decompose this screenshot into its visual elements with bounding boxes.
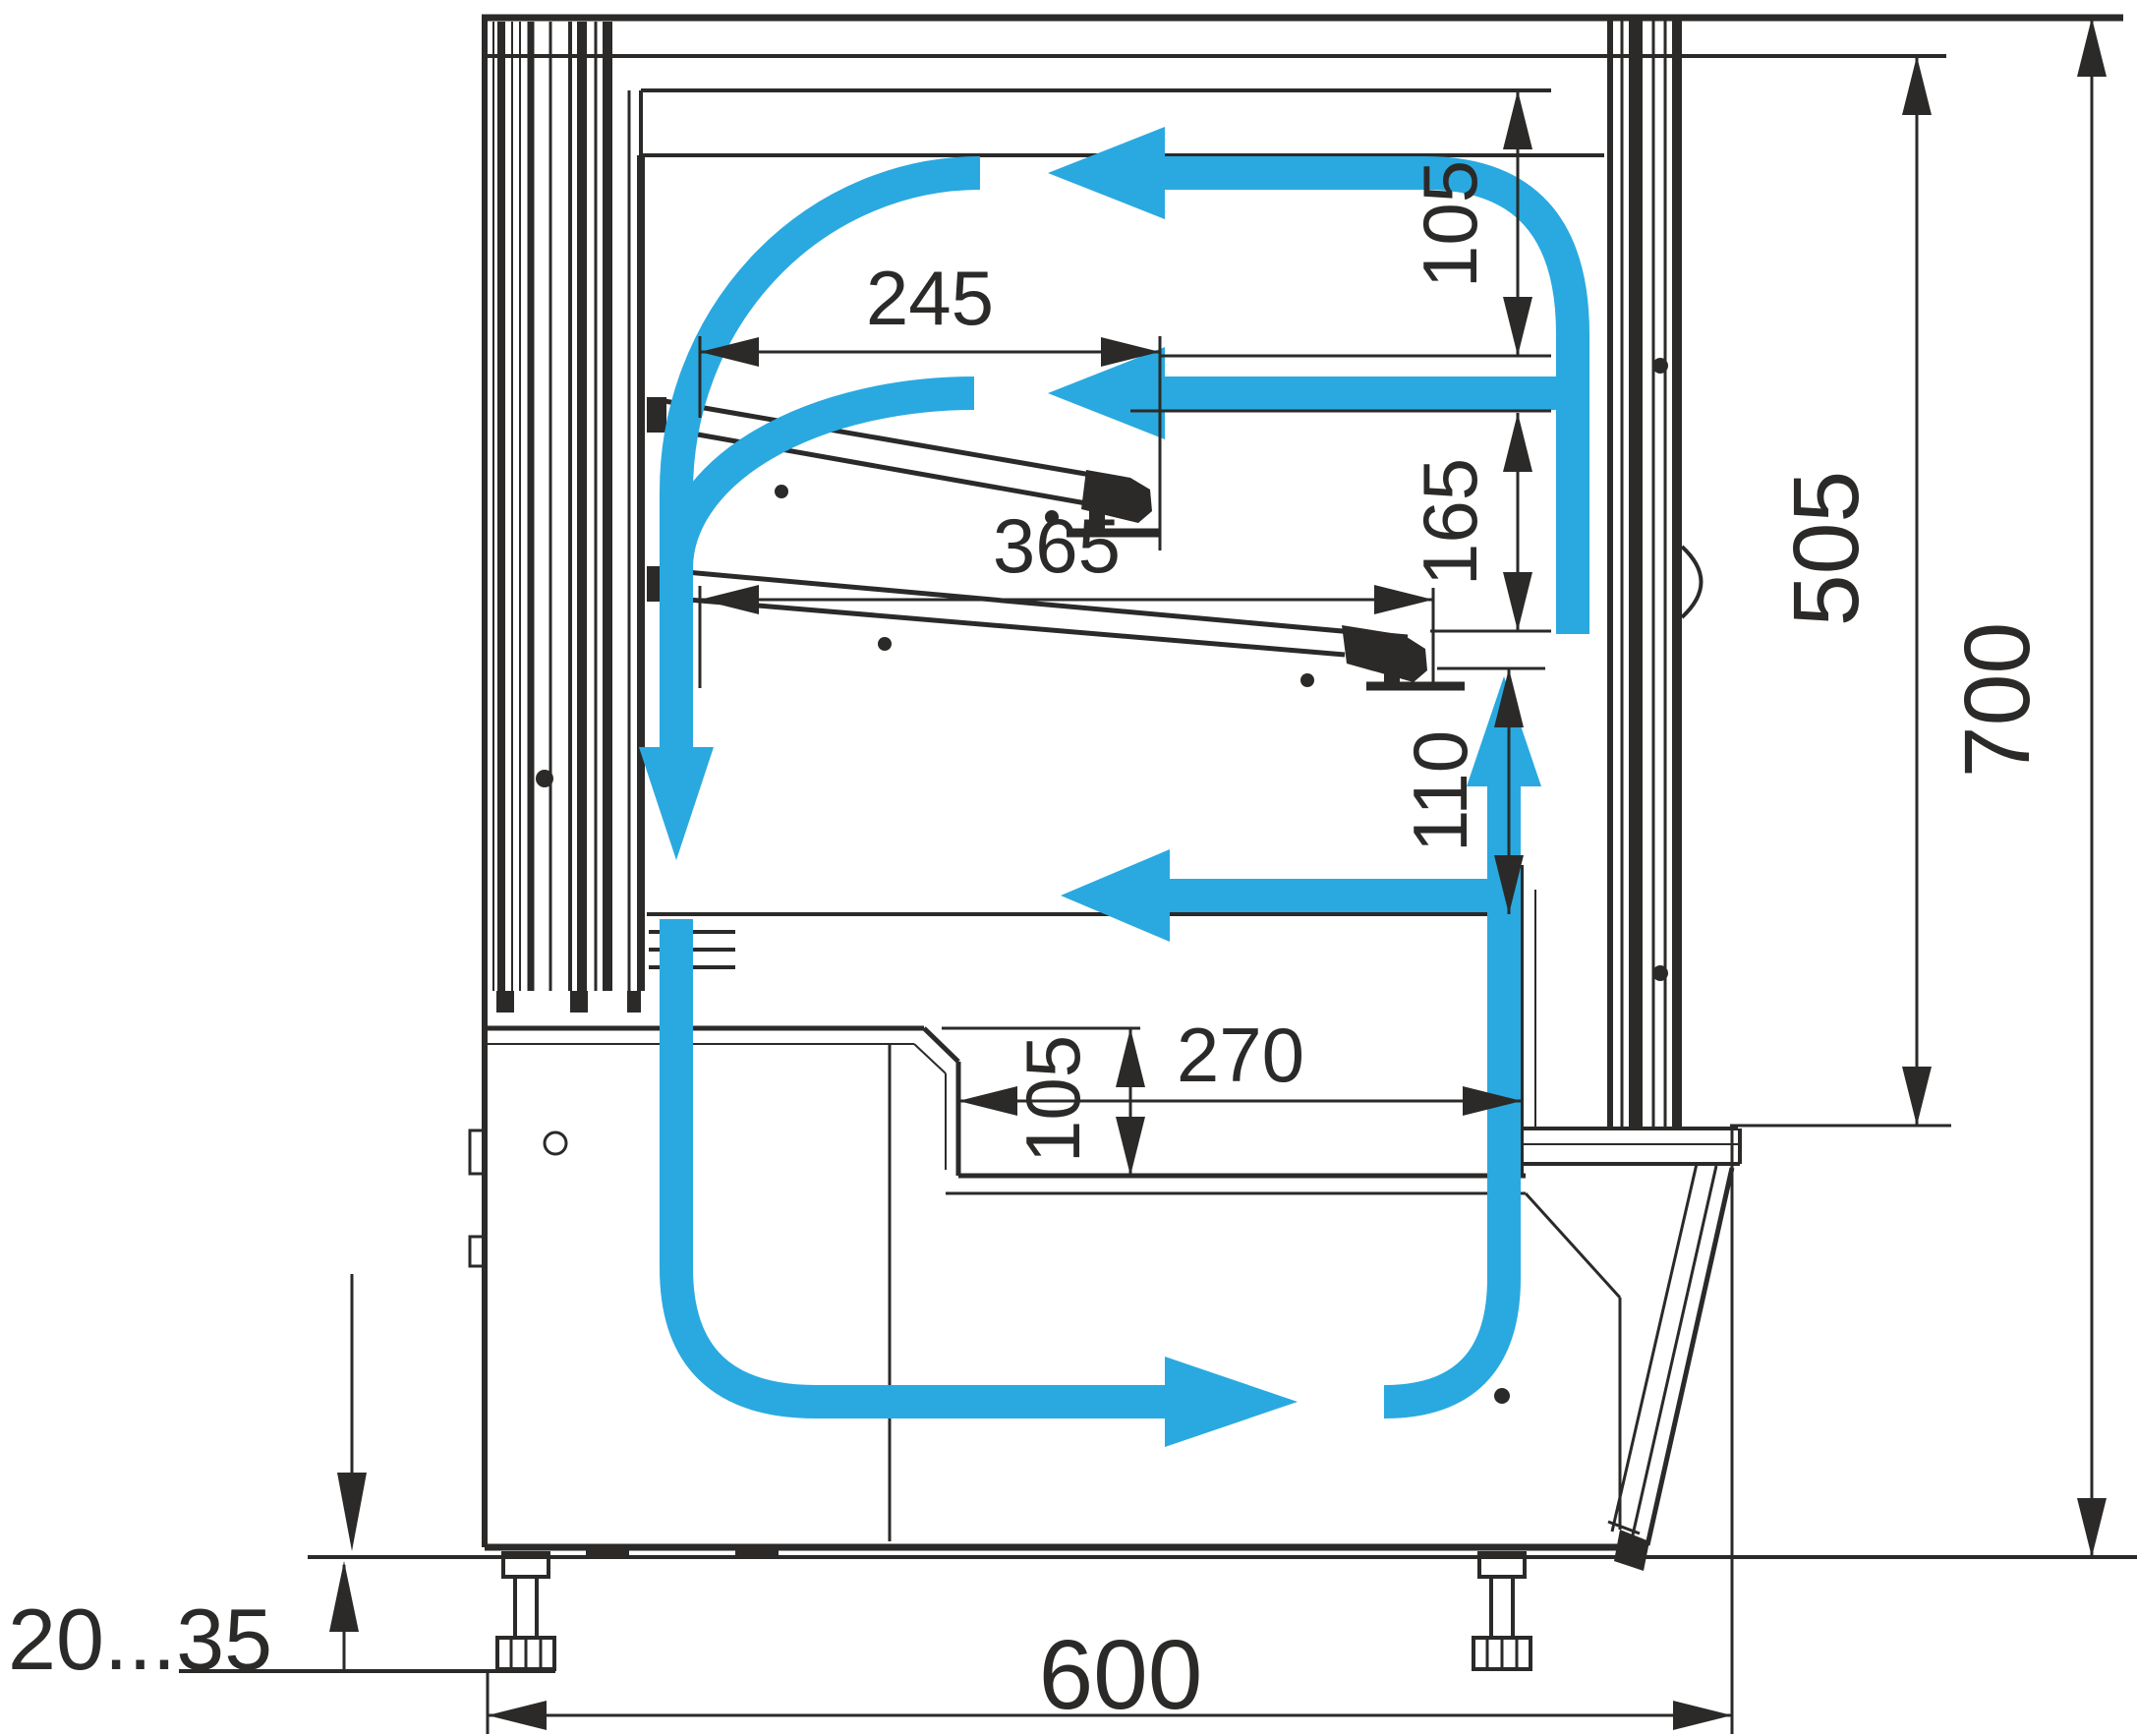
dimension-245-label: 245 — [866, 255, 994, 341]
drawing-canvas: 245 365 105 165 — [0, 0, 2137, 1736]
dimension-700: 700 — [1945, 18, 2107, 1557]
airflow-down-arrowhead — [639, 747, 714, 860]
dimension-600-label: 600 — [1039, 1620, 1203, 1730]
front-glass — [1494, 1164, 1732, 1571]
dimension-700-label: 700 — [1945, 622, 2050, 779]
airflow-middle-arc — [676, 393, 974, 568]
airflow-lower-arrowhead — [1061, 849, 1170, 942]
airflow-right-arrowhead — [1165, 1357, 1298, 1447]
adjustable-feet — [497, 1553, 1531, 1669]
dimension-165-label: 165 — [1407, 458, 1493, 586]
dimensions: 245 365 105 165 — [8, 18, 2107, 1734]
dimension-365: 365 — [700, 502, 1433, 688]
canopy — [482, 18, 2123, 155]
dimension-365-label: 365 — [993, 502, 1121, 589]
front-frame — [1514, 20, 1742, 1164]
dimension-105-bottom-label: 105 — [1010, 1035, 1096, 1163]
dimension-20-35-label: 20...35 — [8, 1591, 272, 1688]
dimension-505: 505 — [1730, 56, 1951, 1126]
dimension-105-top-label: 105 — [1407, 160, 1493, 288]
dimension-110-label: 110 — [1397, 730, 1483, 852]
frame-handle-bump — [1682, 547, 1702, 617]
dimension-505-label: 505 — [1774, 471, 1878, 627]
wall-screw-dot — [536, 770, 553, 787]
display-case-cross-section-drawing: 245 365 105 165 — [0, 0, 2137, 1736]
dimension-270-label: 270 — [1177, 1012, 1304, 1098]
airflow-top-left-arrowhead — [1048, 127, 1165, 219]
dimension-20-35: 20...35 — [8, 1274, 555, 1688]
dimension-105-top: 105 — [1130, 90, 1551, 411]
